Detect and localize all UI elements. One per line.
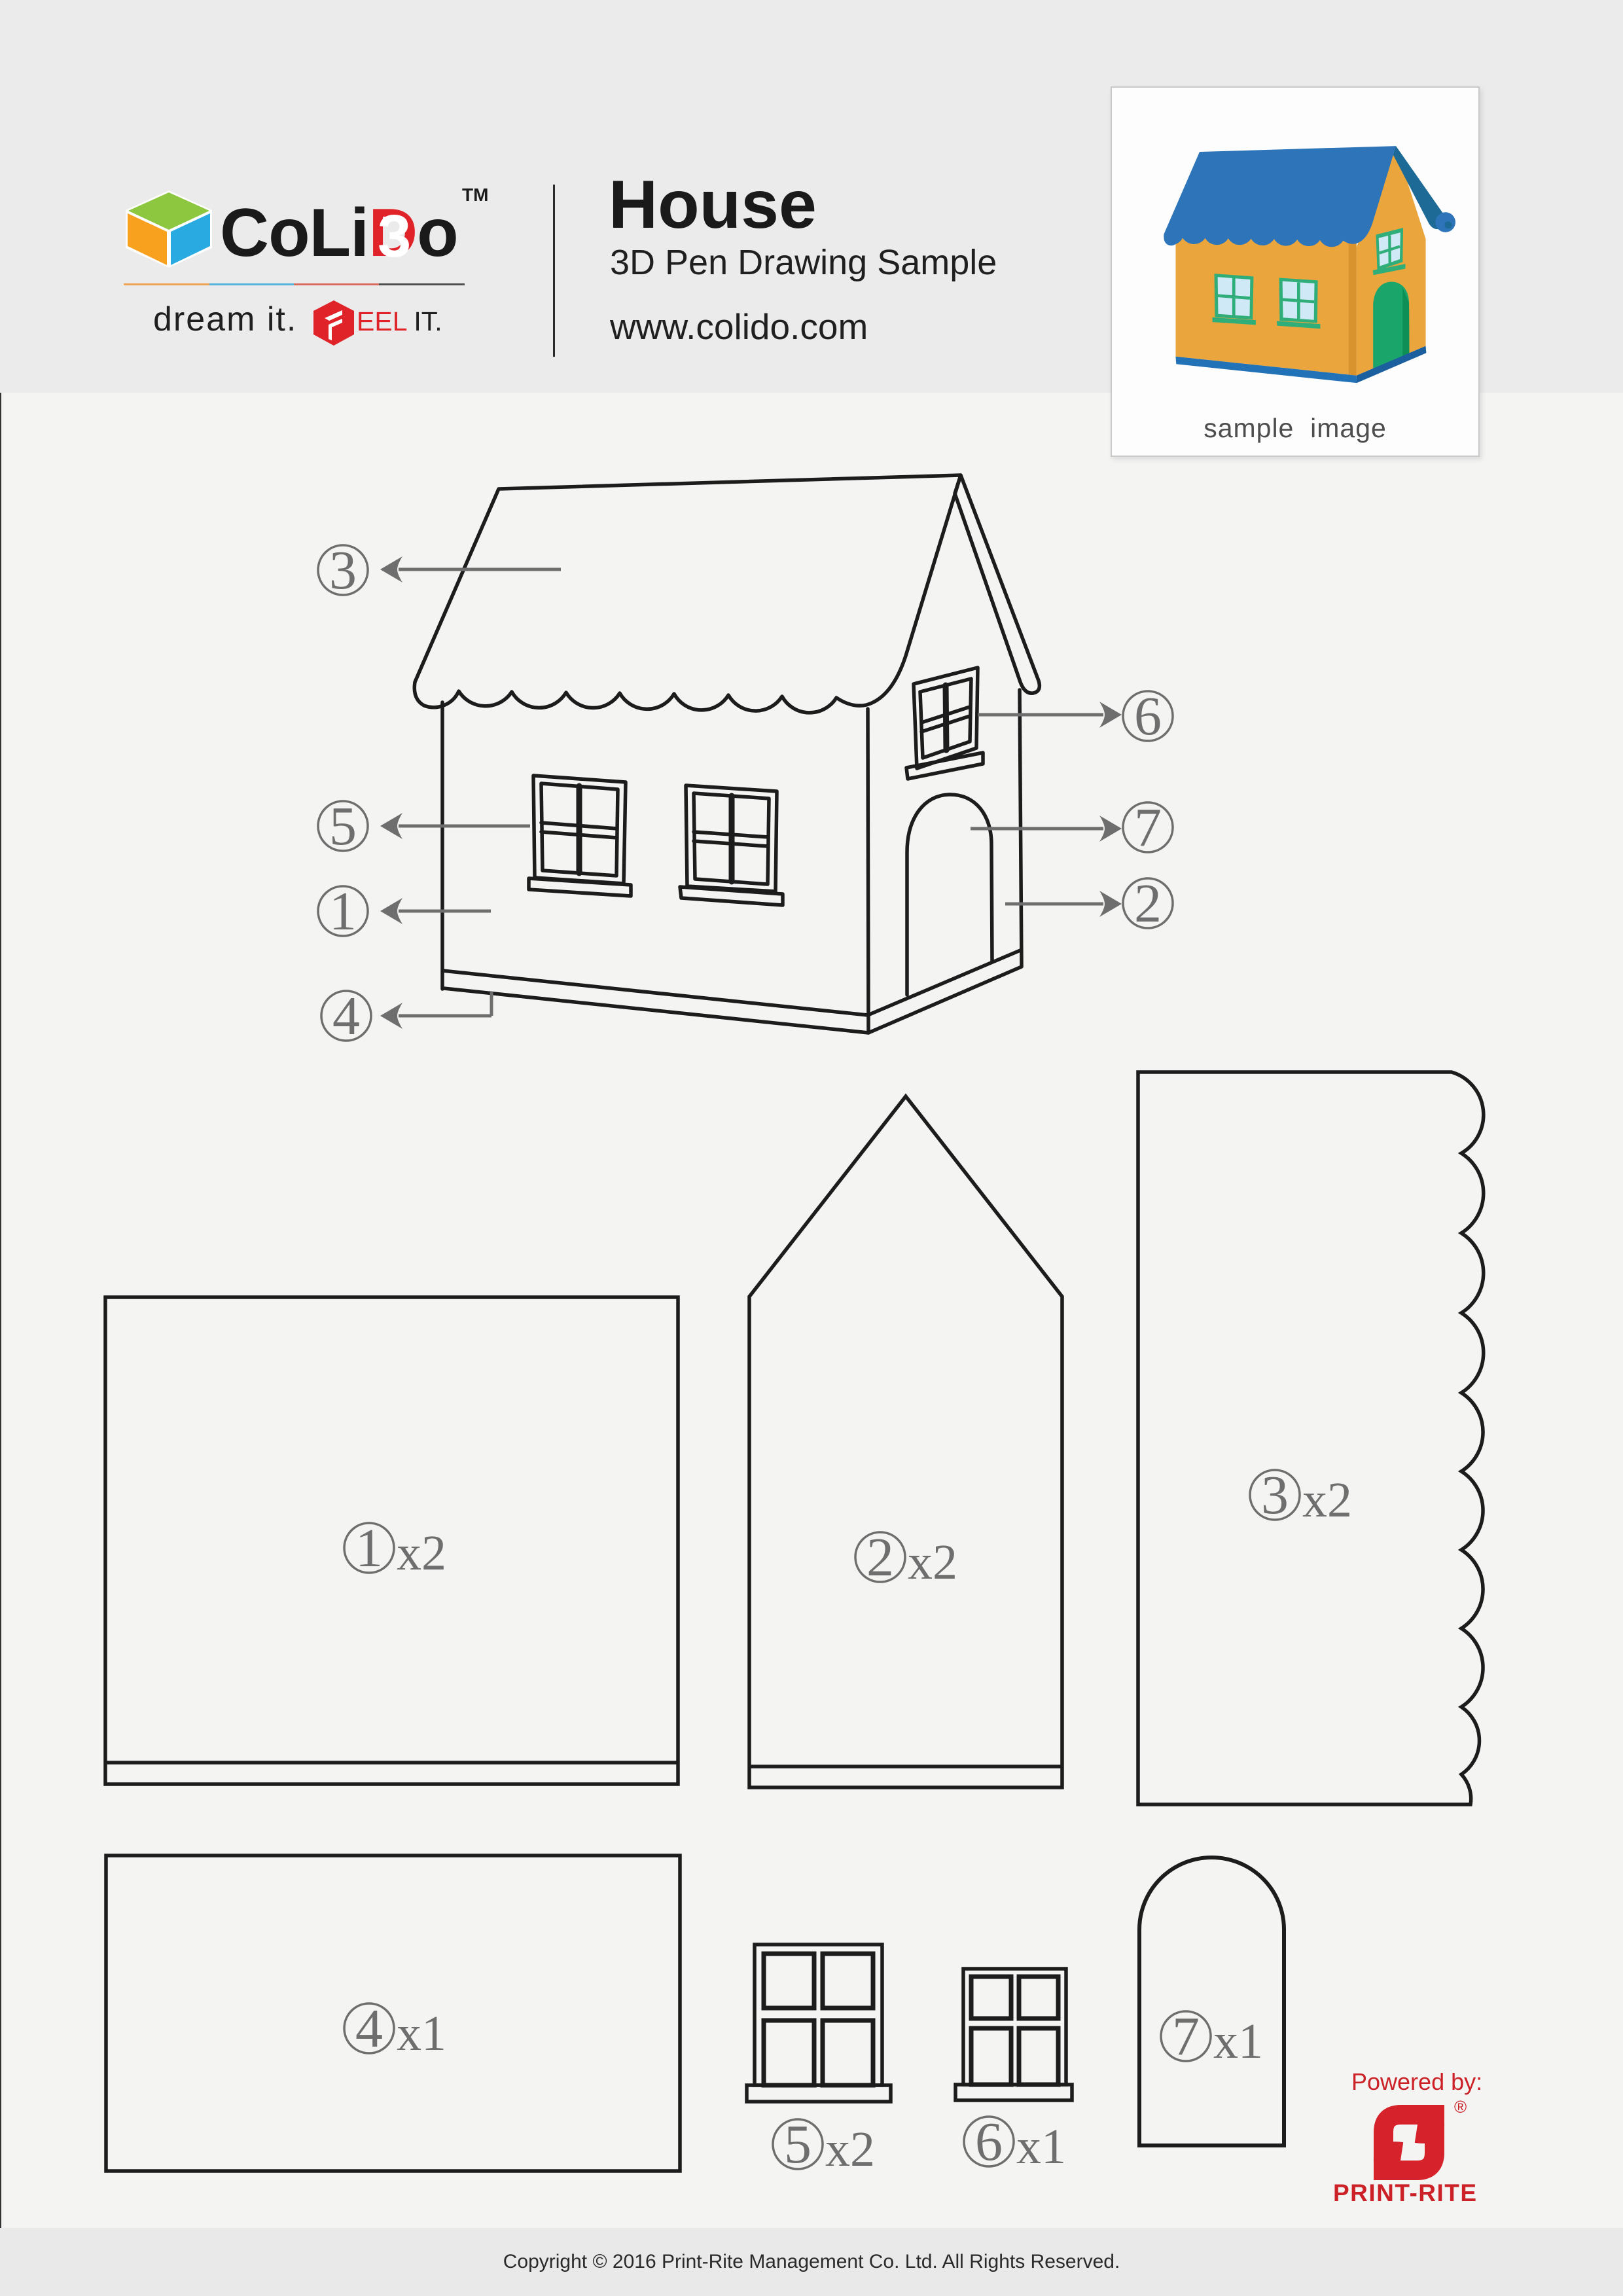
svg-text:6: 6 (1134, 686, 1162, 747)
svg-text:5: 5 (784, 2114, 811, 2175)
svg-text:®: ® (1454, 2097, 1467, 2117)
svg-text:4: 4 (332, 986, 360, 1047)
svg-text:7: 7 (1134, 797, 1162, 858)
svg-text:3: 3 (329, 540, 357, 601)
svg-text:x2: x2 (825, 2122, 875, 2177)
svg-text:Powered by:: Powered by: (1351, 2068, 1482, 2095)
svg-text:1: 1 (355, 1518, 383, 1579)
svg-text:4: 4 (355, 1998, 383, 2059)
svg-text:x1: x1 (1213, 2014, 1263, 2069)
svg-text:6: 6 (975, 2111, 1003, 2172)
svg-text:7: 7 (1172, 2006, 1200, 2067)
svg-text:x1: x1 (1016, 2119, 1066, 2174)
svg-text:1: 1 (329, 881, 357, 942)
svg-text:PRINT-RITE: PRINT-RITE (1333, 2179, 1478, 2206)
svg-text:x2: x2 (397, 1526, 446, 1581)
svg-text:x1: x1 (397, 2006, 446, 2061)
svg-text:5: 5 (329, 796, 357, 857)
svg-text:2: 2 (1134, 873, 1162, 934)
svg-text:3: 3 (1261, 1465, 1289, 1526)
svg-text:x2: x2 (1302, 1473, 1352, 1528)
svg-text:2: 2 (866, 1527, 894, 1588)
svg-text:x2: x2 (908, 1535, 957, 1590)
